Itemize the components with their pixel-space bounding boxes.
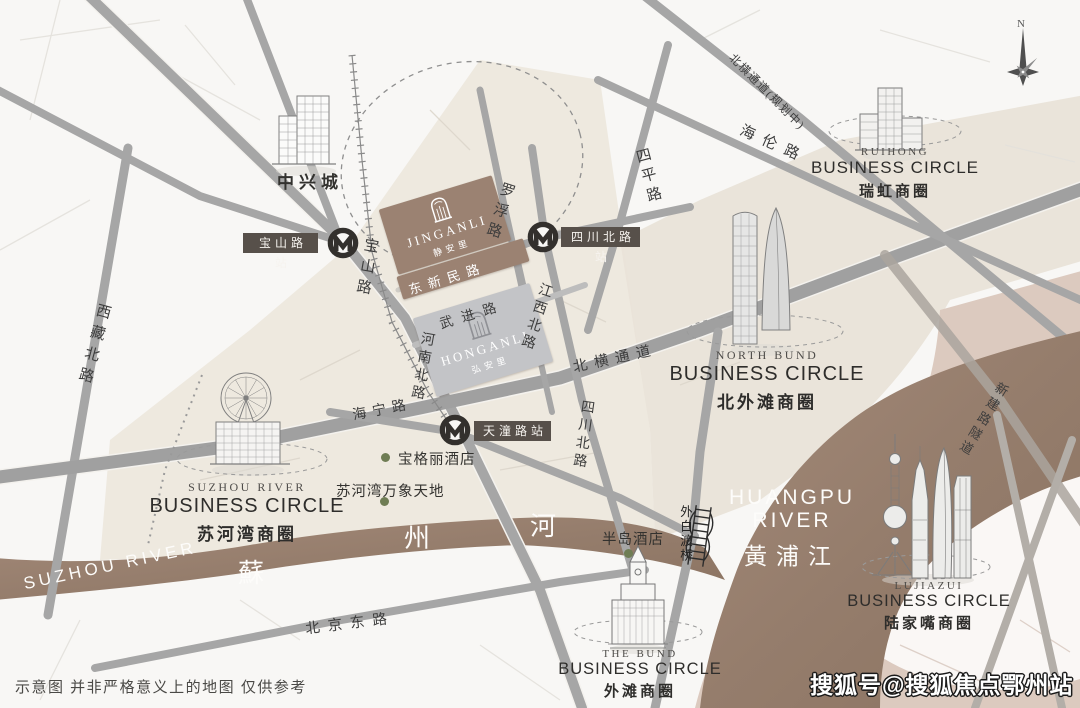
bc-northbund-cn: 北外滩商圈 — [669, 388, 864, 413]
poi-dot-peninsula — [624, 549, 633, 558]
station-badge-tiantonglu: 天潼路站 — [474, 421, 551, 441]
bc-ruihong-cn: 瑞虹商圈 — [811, 180, 979, 201]
bc-ruihong: RUIHONG BUSINESS CIRCLE 瑞虹商圈 — [811, 146, 979, 201]
bc-northbund-en: NORTH BUND — [669, 348, 864, 363]
bc-lujiazui: LUJIAZUI BUSINESS CIRCLE 陆家嘴商圈 — [847, 580, 1011, 633]
poi-label-bulgari: 宝格丽酒店 — [398, 448, 476, 469]
river-char-su: 蘇 — [238, 553, 264, 590]
watermark: 搜狐号@搜狐焦点鄂州站 — [810, 666, 1073, 700]
bc-lujiazui-cn: 陆家嘴商圈 — [847, 612, 1011, 633]
station-badge-sichuanbeilu: 四川北路站 — [561, 227, 640, 247]
bc-suzhouriver-en: SUZHOU RIVER — [149, 480, 344, 495]
bc-ruihong-label: BUSINESS CIRCLE — [811, 158, 979, 178]
bc-thebund: THE BUND BUSINESS CIRCLE 外滩商圈 — [558, 648, 722, 701]
metro-logo-sichuanbeilu — [530, 224, 555, 249]
bc-thebund-cn: 外滩商圈 — [558, 680, 722, 701]
bc-lujiazui-label: BUSINESS CIRCLE — [847, 592, 1011, 611]
bc-suzhouriver: SUZHOU RIVER BUSINESS CIRCLE 苏河湾商圈 — [149, 480, 344, 545]
map-stage: JINGANLI 静安里 HONGANLI 弘安里 宝山路站 四川北路站 天潼路… — [0, 0, 1080, 708]
bc-northbund-label: BUSINESS CIRCLE — [669, 363, 864, 386]
river-char-he: 河 — [530, 506, 556, 543]
poi-dot-bulgari — [381, 453, 390, 462]
bc-northbund: NORTH BUND BUSINESS CIRCLE 北外滩商圈 — [669, 348, 864, 413]
compass-north-label: N — [1017, 18, 1025, 30]
river-char-zhou: 州 — [404, 518, 430, 555]
bc-ruihong-en: RUIHONG — [811, 146, 979, 158]
river-label-huangpu-en2: RIVER — [729, 509, 855, 532]
poi-dot-mixc — [380, 497, 389, 506]
river-label-huangpu-cn: 黃浦江 — [729, 537, 855, 571]
river-label-huangpu: HUANGPU RIVER 黃浦江 — [729, 486, 855, 571]
poi-label-zhongxingcheng: 中兴城 — [277, 168, 343, 193]
metro-logo-tiantonglu — [442, 417, 467, 442]
river-label-huangpu-en1: HUANGPU — [729, 486, 855, 509]
poi-label-mixc: 苏河湾万象天地 — [336, 480, 445, 501]
bc-suzhouriver-label: BUSINESS CIRCLE — [149, 495, 344, 518]
bc-lujiazui-en: LUJIAZUI — [847, 580, 1011, 592]
road-label-waibaidu: 外白渡桥 — [676, 505, 695, 563]
station-badge-baoshanlu: 宝山路站 — [243, 233, 318, 253]
station-badge-tiantonglu-label: 天潼路站 — [483, 424, 547, 438]
map-disclaimer: 示意图 并非严格意义上的地图 仅供参考 — [15, 676, 307, 697]
jinganli-arch-icon — [427, 193, 454, 224]
bc-thebund-label: BUSINESS CIRCLE — [558, 660, 722, 679]
metro-logo-baoshanlu — [330, 230, 355, 255]
bc-thebund-en: THE BUND — [558, 648, 722, 660]
poi-label-peninsula: 半岛酒店 — [602, 528, 664, 549]
